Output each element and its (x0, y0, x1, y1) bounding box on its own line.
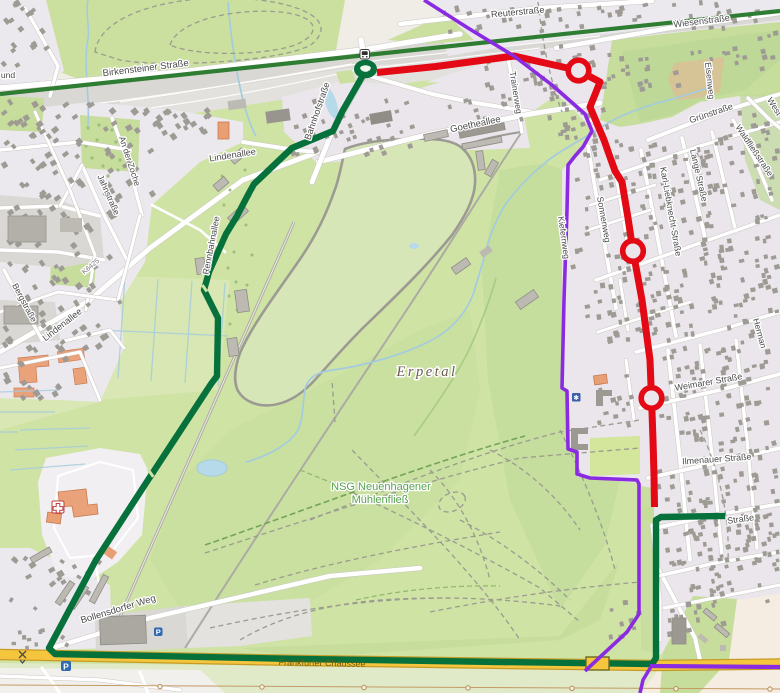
svg-text:P: P (63, 661, 69, 671)
svg-text:✱: ✱ (573, 394, 579, 402)
svg-text:Frankfurter Chaussee: Frankfurter Chaussee (278, 657, 365, 669)
svg-text:NSG Neuenhagener: NSG Neuenhagener (331, 481, 431, 493)
svg-text:P: P (156, 628, 161, 637)
svg-text:Erpetal: Erpetal (396, 364, 458, 380)
svg-text:Mühlenfließ: Mühlenfließ (352, 494, 409, 506)
svg-text:und: und (1, 70, 16, 80)
